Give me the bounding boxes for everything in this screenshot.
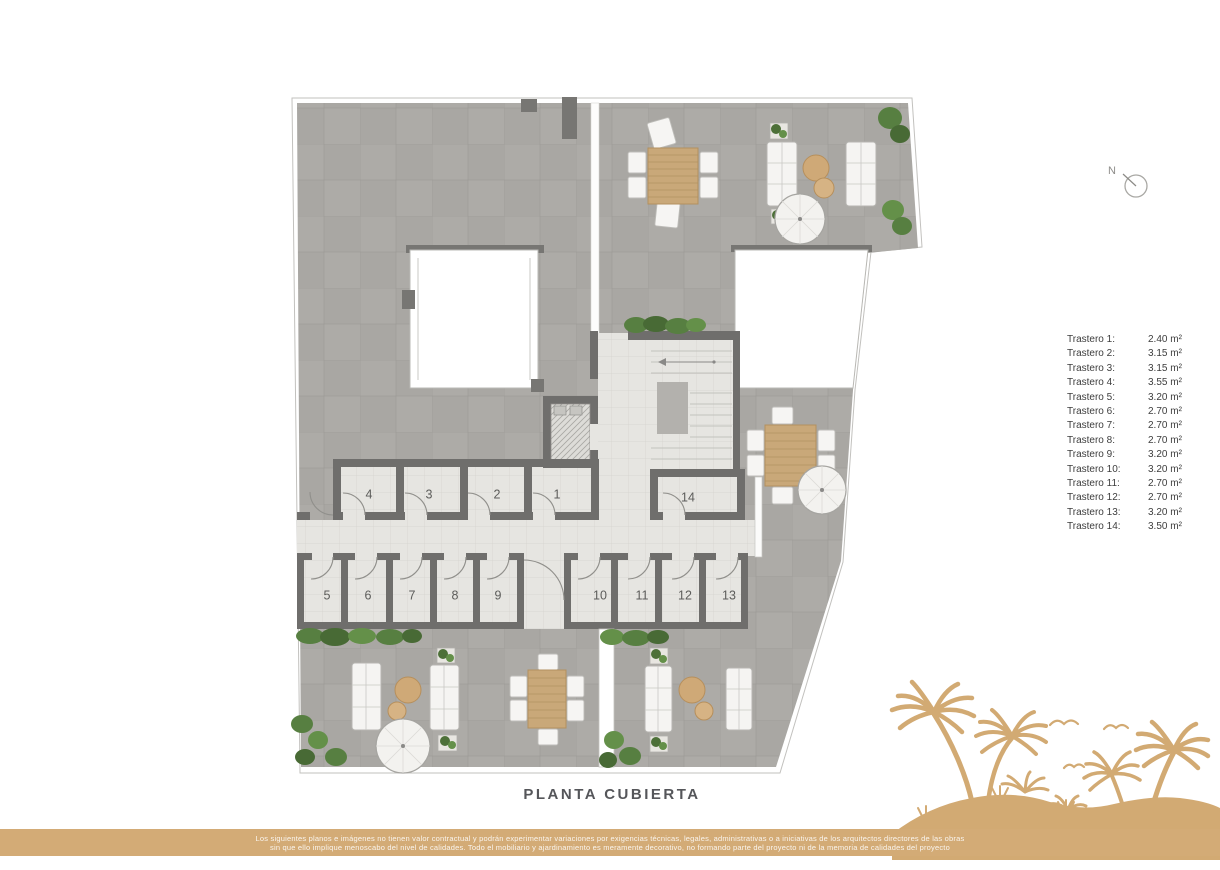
room-number-label: 2 xyxy=(494,487,501,501)
legend-row: Trastero 12:2.70 m² xyxy=(1067,491,1197,505)
room-number-label: 4 xyxy=(366,487,373,501)
legend-row: Trastero 1:2.40 m² xyxy=(1067,333,1197,347)
room-number-label: 12 xyxy=(678,588,692,602)
legend-room-area: 3.50 m² xyxy=(1148,520,1182,534)
legend-room-label: Trastero 6: xyxy=(1067,405,1148,419)
legend-room-label: Trastero 1: xyxy=(1067,333,1148,347)
legend-list: Trastero 1:2.40 m²Trastero 2:3.15 m²Tras… xyxy=(1067,333,1197,535)
roof-chimney xyxy=(521,99,537,112)
room-number-label: 13 xyxy=(722,588,736,602)
room-number-label: 6 xyxy=(365,588,372,602)
legend-room-label: Trastero 13: xyxy=(1067,506,1148,520)
room-number-label: 1 xyxy=(554,487,561,501)
floor-plan-drawing: 1234567891011121314 xyxy=(0,0,1220,870)
legend-row: Trastero 6:2.70 m² xyxy=(1067,405,1197,419)
legend-row: Trastero 5:3.20 m² xyxy=(1067,391,1197,405)
legend-room-area: 2.70 m² xyxy=(1148,477,1182,491)
legend-row: Trastero 11:2.70 m² xyxy=(1067,477,1197,491)
legend-row: Trastero 8:2.70 m² xyxy=(1067,434,1197,448)
room-number-label: 3 xyxy=(426,487,433,501)
elevator xyxy=(543,396,598,468)
umbrella xyxy=(376,719,430,773)
legend-row: Trastero 13:3.20 m² xyxy=(1067,506,1197,520)
legend-room-area: 3.15 m² xyxy=(1148,362,1182,376)
room-number-label: 5 xyxy=(324,588,331,602)
disclaimer-line-2: sin que ello implique menoscabo del nive… xyxy=(0,843,1220,852)
legend-room-label: Trastero 12: xyxy=(1067,491,1148,505)
legend-room-area: 3.55 m² xyxy=(1148,376,1182,390)
legend-room-area: 3.20 m² xyxy=(1148,391,1182,405)
legend-room-area: 3.20 m² xyxy=(1148,463,1182,477)
legend-room-area: 2.70 m² xyxy=(1148,419,1182,433)
legend-row: Trastero 3:3.15 m² xyxy=(1067,362,1197,376)
roof-chimney xyxy=(562,97,577,139)
legend-room-label: Trastero 5: xyxy=(1067,391,1148,405)
bird-icon xyxy=(1050,721,1128,769)
legend-room-label: Trastero 4: xyxy=(1067,376,1148,390)
umbrella xyxy=(798,466,846,514)
roof-joint-strip xyxy=(591,103,599,335)
legend-row: Trastero 10:3.20 m² xyxy=(1067,463,1197,477)
room-number-label: 8 xyxy=(452,588,459,602)
legend-room-area: 3.20 m² xyxy=(1148,506,1182,520)
room-number-label: 9 xyxy=(495,588,502,602)
legend-row: Trastero 9:3.20 m² xyxy=(1067,448,1197,462)
legend-room-label: Trastero 3: xyxy=(1067,362,1148,376)
legend-room-label: Trastero 2: xyxy=(1067,347,1148,361)
legend-row: Trastero 14:3.50 m² xyxy=(1067,520,1197,534)
legend-room-label: Trastero 11: xyxy=(1067,477,1148,491)
footer-bar: Los siguientes planos e imágenes no tien… xyxy=(0,829,1220,856)
north-arrow xyxy=(1123,174,1147,197)
disclaimer-line-1: Los siguientes planos e imágenes no tien… xyxy=(0,834,1220,843)
room-number-label: 10 xyxy=(593,588,607,602)
legend-room-area: 2.70 m² xyxy=(1148,491,1182,505)
north-label: N xyxy=(1108,165,1116,177)
legend-room-area: 2.70 m² xyxy=(1148,405,1182,419)
room-number-label: 7 xyxy=(409,588,416,602)
umbrella xyxy=(775,194,825,244)
legend-room-label: Trastero 14: xyxy=(1067,520,1148,534)
patio-void-1 xyxy=(402,245,544,392)
legend-room-label: Trastero 9: xyxy=(1067,448,1148,462)
legend-row: Trastero 7:2.70 m² xyxy=(1067,419,1197,433)
legend-room-label: Trastero 8: xyxy=(1067,434,1148,448)
patio-void-2 xyxy=(731,245,872,388)
legend-room-area: 2.40 m² xyxy=(1148,333,1182,347)
plan-canvas: 1234567891011121314 xyxy=(0,0,1220,870)
room-number-label: 11 xyxy=(636,588,649,602)
legend-row: Trastero 4:3.55 m² xyxy=(1067,376,1197,390)
room-number-label: 14 xyxy=(681,490,695,504)
legend-room-area: 3.20 m² xyxy=(1148,448,1182,462)
corridor-end-glass xyxy=(755,477,762,557)
legend-row: Trastero 2:3.15 m² xyxy=(1067,347,1197,361)
legend: Trastero 1:2.40 m²Trastero 2:3.15 m²Tras… xyxy=(1067,333,1197,535)
page-title: PLANTA CUBIERTA xyxy=(523,786,700,803)
legend-room-label: Trastero 7: xyxy=(1067,419,1148,433)
legend-room-label: Trastero 10: xyxy=(1067,463,1148,477)
legend-room-area: 2.70 m² xyxy=(1148,434,1182,448)
legend-room-area: 3.15 m² xyxy=(1148,347,1182,361)
